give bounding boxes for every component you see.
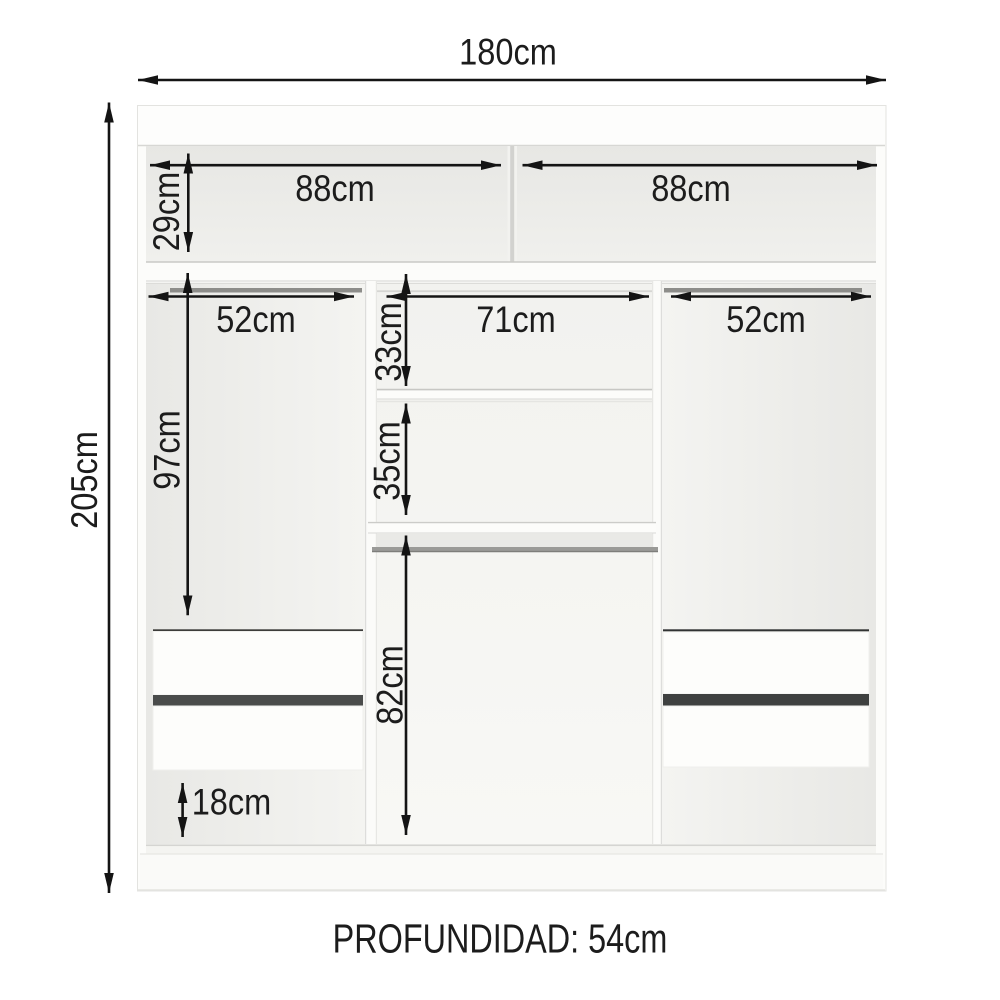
svg-text:82cm: 82cm — [370, 645, 411, 725]
svg-text:52cm: 52cm — [726, 299, 806, 340]
svg-text:33cm: 33cm — [368, 302, 409, 382]
svg-text:88cm: 88cm — [295, 168, 375, 209]
svg-text:29cm: 29cm — [146, 172, 187, 252]
svg-text:180cm: 180cm — [459, 32, 557, 73]
svg-text:88cm: 88cm — [651, 168, 731, 209]
svg-text:18cm: 18cm — [192, 782, 272, 823]
svg-text:52cm: 52cm — [216, 299, 296, 340]
svg-text:97cm: 97cm — [147, 410, 188, 490]
svg-text:71cm: 71cm — [476, 299, 556, 340]
svg-text:35cm: 35cm — [367, 421, 408, 501]
svg-text:PROFUNDIDAD: 54cm: PROFUNDIDAD: 54cm — [333, 916, 668, 961]
svg-text:205cm: 205cm — [64, 431, 105, 529]
